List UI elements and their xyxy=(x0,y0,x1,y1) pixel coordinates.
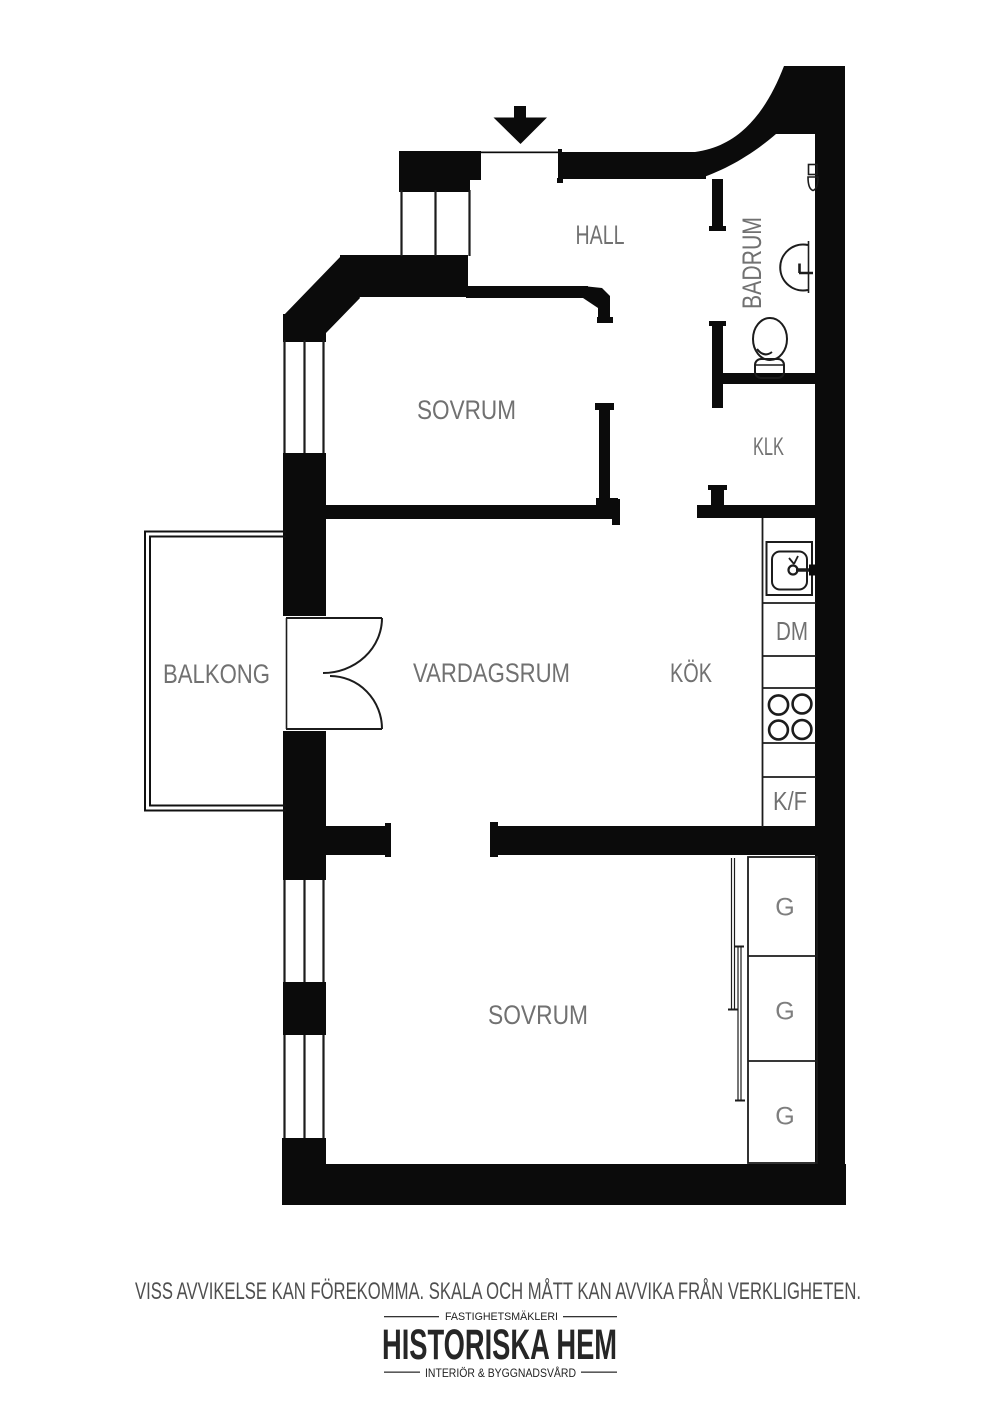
svg-text:KLK: KLK xyxy=(753,433,784,461)
svg-text:K/F: K/F xyxy=(773,786,807,816)
svg-text:VARDAGSRUM: VARDAGSRUM xyxy=(413,658,570,688)
svg-text:G: G xyxy=(775,1103,794,1131)
svg-text:BALKONG: BALKONG xyxy=(163,659,270,689)
svg-text:VISS AVVIKELSE KAN FÖREKOMMA.: VISS AVVIKELSE KAN FÖREKOMMA. SKALA OCH … xyxy=(135,1277,861,1305)
svg-text:G: G xyxy=(775,894,794,922)
svg-text:SOVRUM: SOVRUM xyxy=(488,1000,588,1030)
svg-text:G: G xyxy=(775,998,794,1026)
svg-text:INTERIÖR & BYGGNADSVÅRD: INTERIÖR & BYGGNADSVÅRD xyxy=(425,1365,576,1380)
svg-text:HISTORISKA HEM: HISTORISKA HEM xyxy=(382,1321,617,1369)
svg-text:DM: DM xyxy=(776,616,808,646)
svg-text:KÖK: KÖK xyxy=(670,658,712,688)
svg-text:SOVRUM: SOVRUM xyxy=(417,395,516,425)
svg-text:HALL: HALL xyxy=(576,220,625,250)
svg-text:BADRUM: BADRUM xyxy=(737,217,767,309)
